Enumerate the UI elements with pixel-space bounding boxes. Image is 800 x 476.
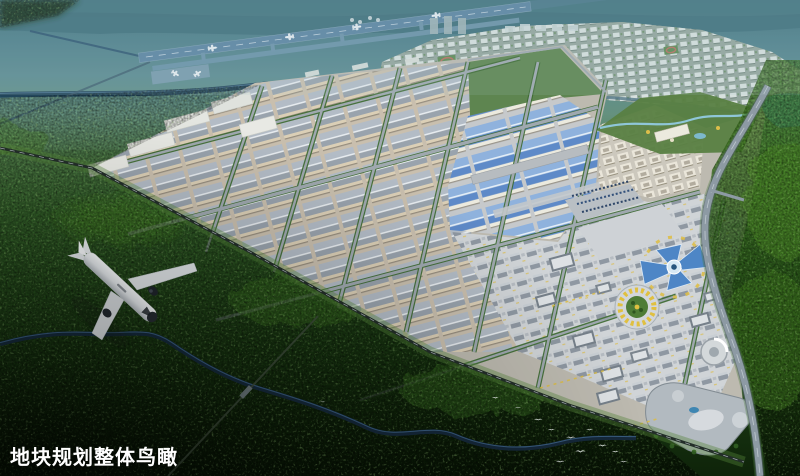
vignette — [0, 0, 800, 476]
screenshot-root: 地块规划整体鸟瞰 — [0, 0, 800, 476]
caption-text: 地块规划整体鸟瞰 — [10, 441, 178, 470]
aerial-rendering — [0, 0, 800, 476]
